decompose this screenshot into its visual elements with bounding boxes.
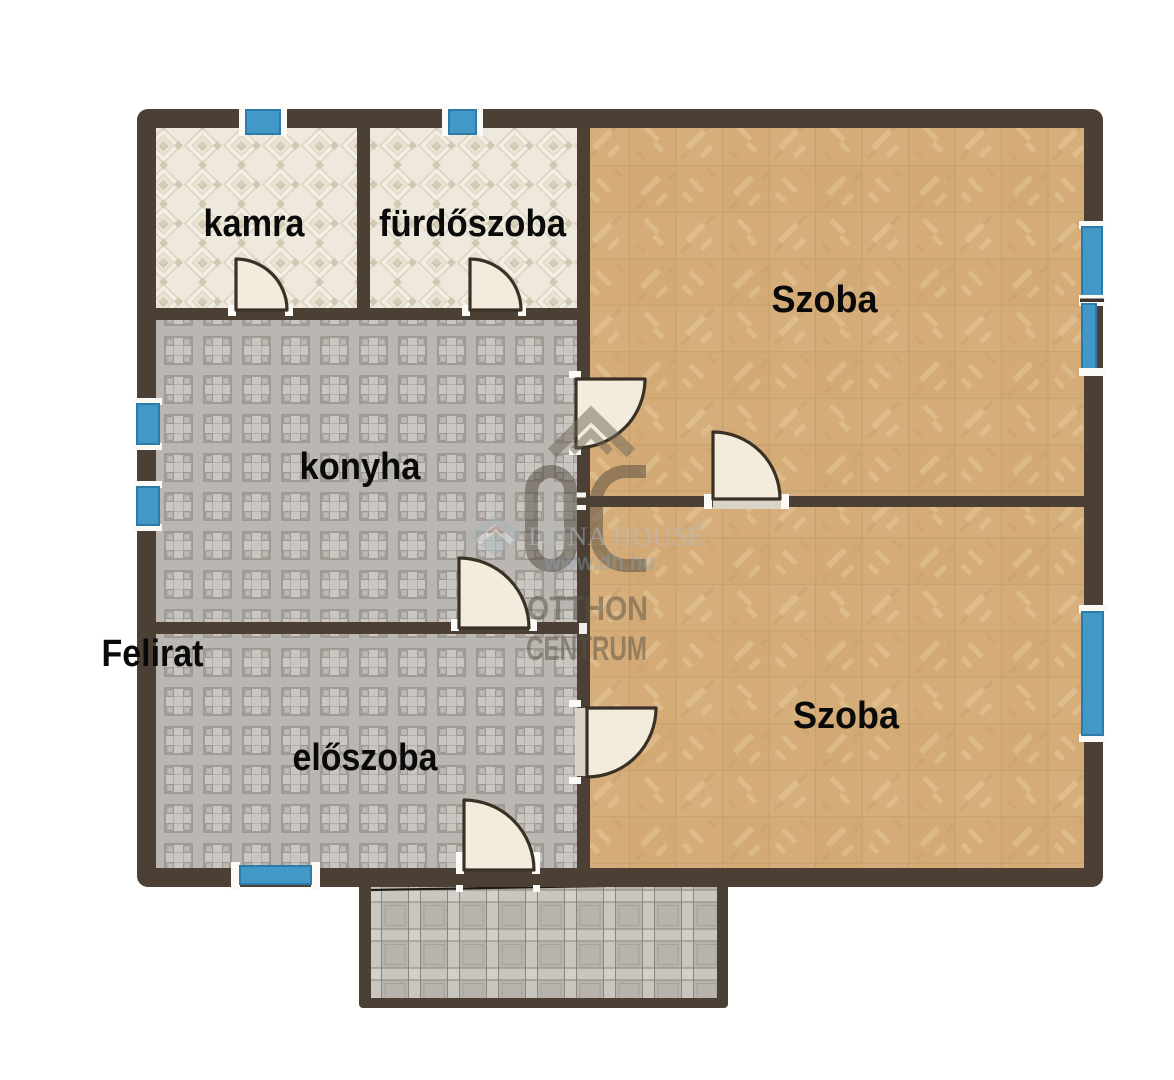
svg-text:CENTRUM: CENTRUM bbox=[526, 630, 647, 668]
svg-text:Felirat: Felirat bbox=[102, 633, 204, 675]
svg-text:®: ® bbox=[698, 520, 706, 532]
svg-text:kamra: kamra bbox=[204, 203, 306, 245]
svg-text:Szoba: Szoba bbox=[793, 695, 900, 737]
svg-text:OTTHON: OTTHON bbox=[527, 590, 648, 628]
svg-text:konyha: konyha bbox=[300, 446, 422, 488]
svg-text:www.dh.hu: www.dh.hu bbox=[544, 549, 656, 575]
svg-text:fürdőszoba: fürdőszoba bbox=[379, 203, 567, 245]
svg-text:Szoba: Szoba bbox=[772, 279, 879, 321]
svg-text:DUNA HOUSE: DUNA HOUSE bbox=[528, 522, 704, 551]
svg-text:előszoba: előszoba bbox=[293, 737, 439, 779]
